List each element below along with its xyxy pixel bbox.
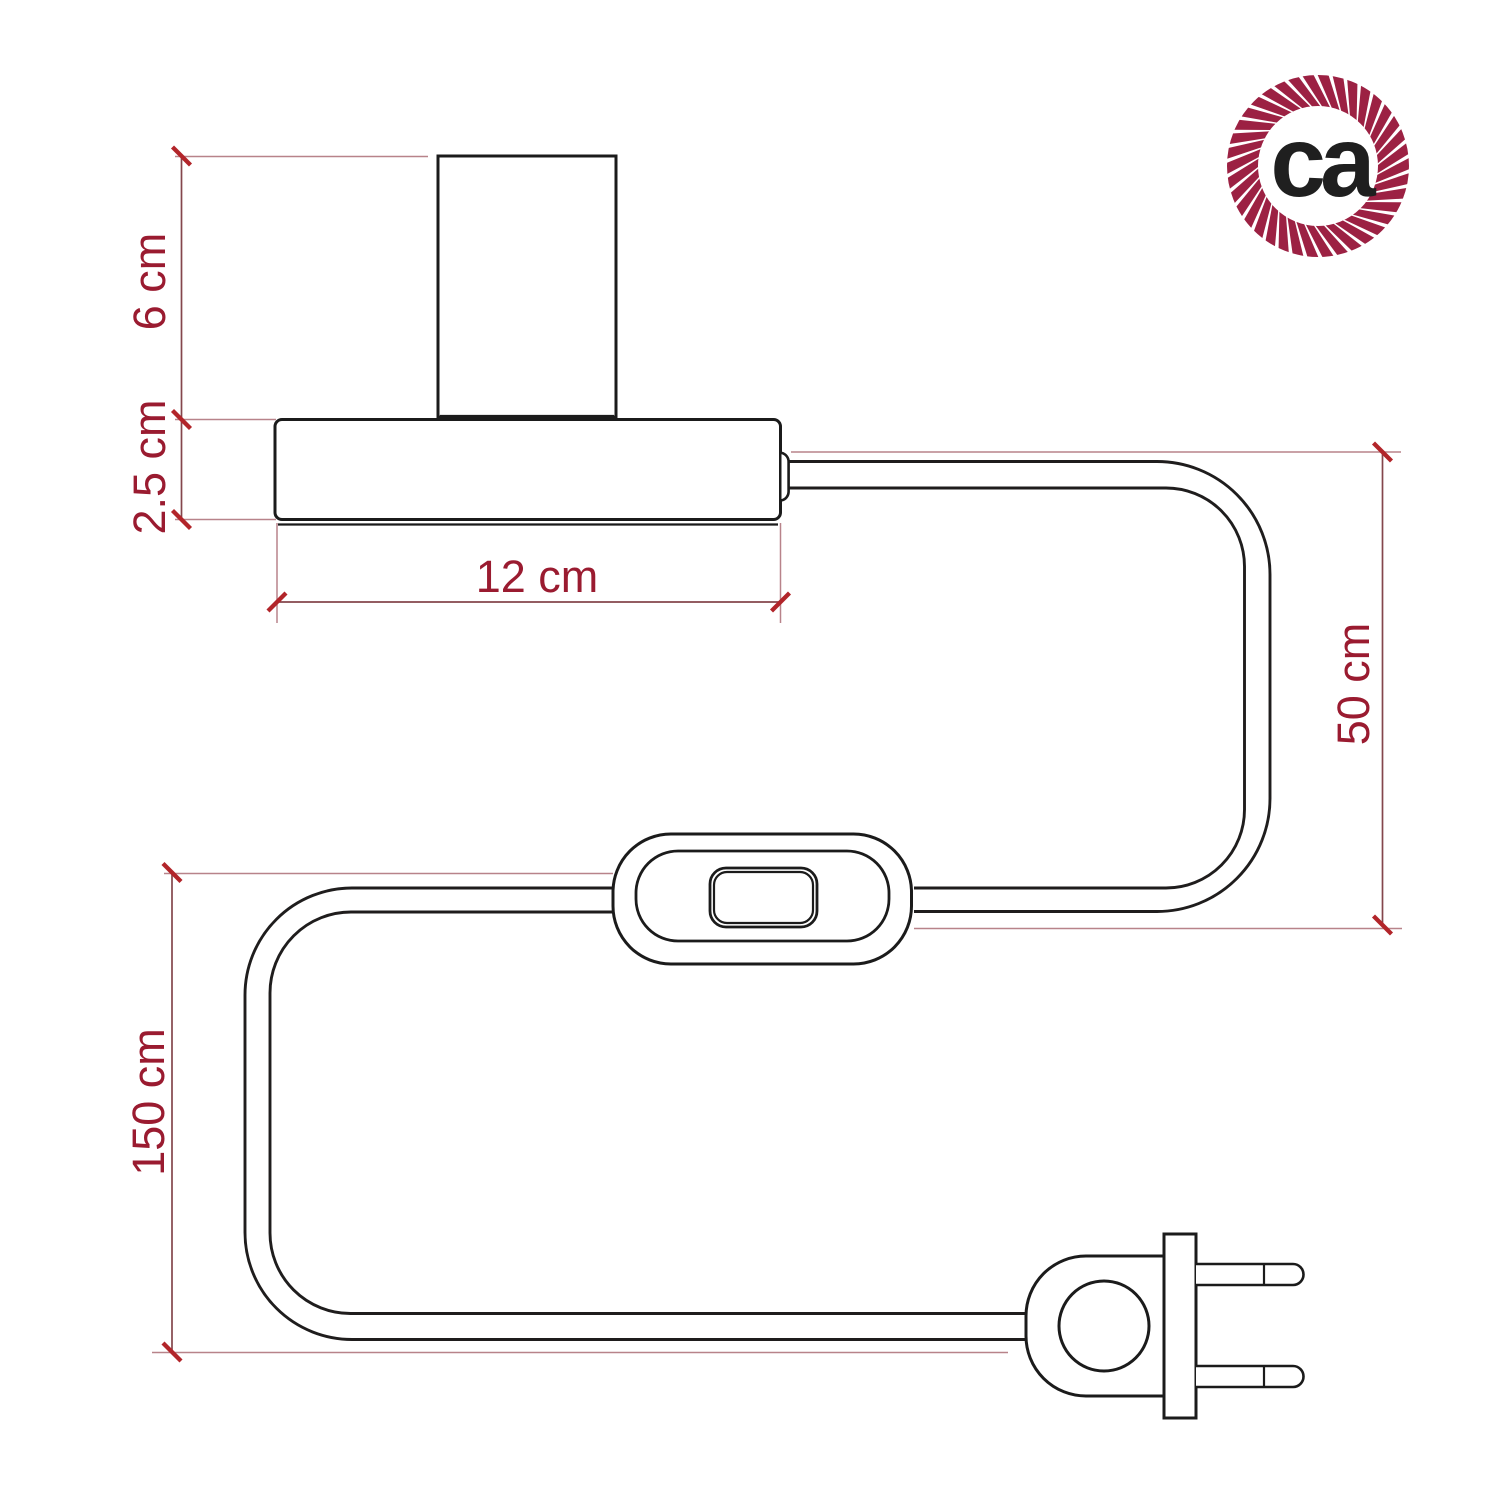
svg-text:ca: ca <box>1270 106 1377 218</box>
svg-text:150 cm: 150 cm <box>123 1028 174 1176</box>
svg-text:6 cm: 6 cm <box>124 233 175 331</box>
svg-text:2.5 cm: 2.5 cm <box>124 399 175 534</box>
svg-text:12 cm: 12 cm <box>476 551 599 602</box>
svg-text:50 cm: 50 cm <box>1328 623 1379 746</box>
